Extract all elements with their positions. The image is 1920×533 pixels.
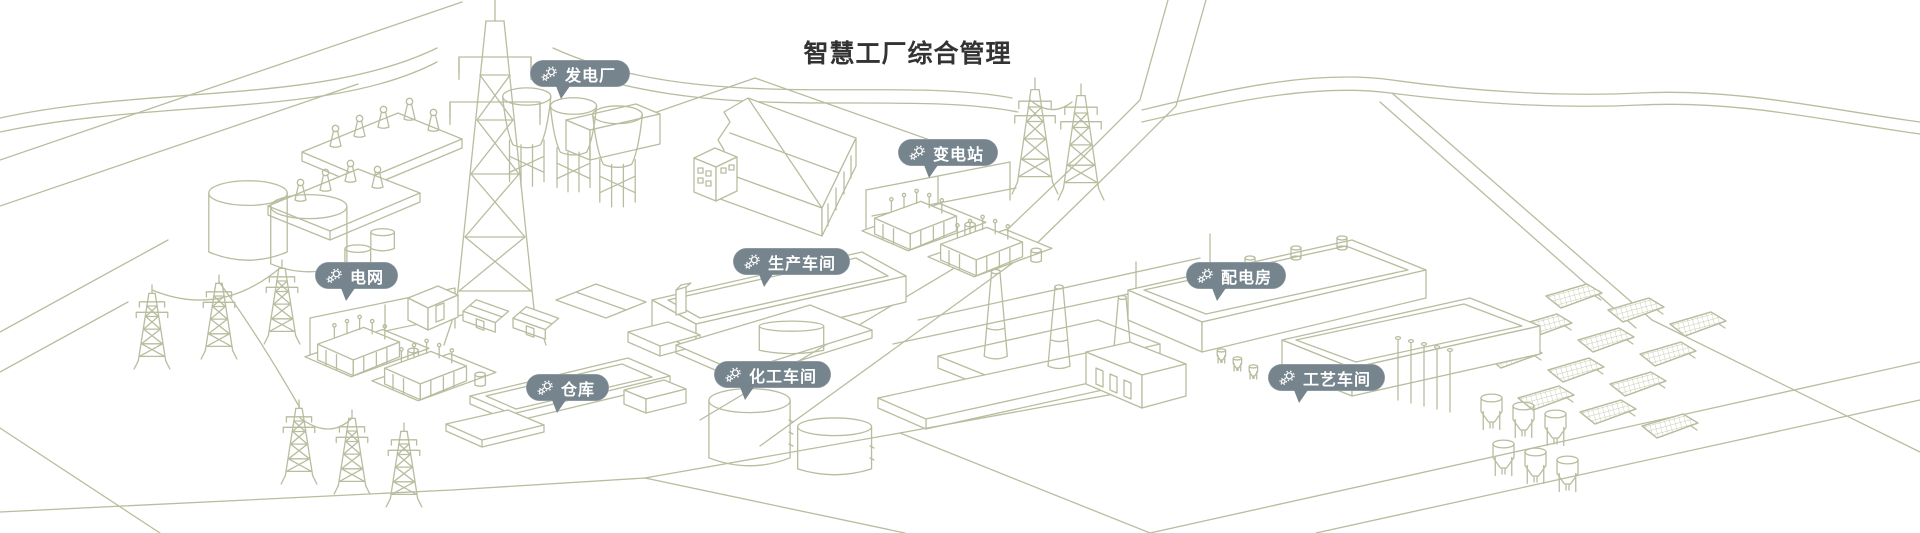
- marker-process-workshop[interactable]: 工艺车间: [1268, 364, 1385, 391]
- marker-chemical-workshop[interactable]: 化工车间: [714, 361, 831, 388]
- marker-warehouse[interactable]: 仓库: [526, 374, 609, 401]
- gears-icon: [724, 366, 742, 384]
- marker-label: 发电厂: [565, 62, 616, 86]
- gears-icon: [908, 144, 926, 162]
- marker-label: 电网: [350, 264, 384, 288]
- marker-label: 生产车间: [768, 250, 836, 274]
- marker-power-distribution-room[interactable]: 配电房: [1186, 262, 1286, 289]
- substation-equipment: [862, 78, 1104, 277]
- marker-label: 配电房: [1221, 264, 1272, 288]
- power-grid-yard: [134, 260, 496, 507]
- marker-production-workshop[interactable]: 生产车间: [733, 248, 850, 275]
- solar-panel-array: [1486, 284, 1726, 438]
- marker-label: 工艺车间: [1303, 366, 1371, 390]
- gears-icon: [325, 267, 343, 285]
- marker-power-plant[interactable]: 发电厂: [530, 60, 630, 87]
- marker-label: 化工车间: [749, 363, 817, 387]
- factory-site-illustration: [0, 0, 1920, 533]
- marker-label: 变电站: [933, 141, 984, 165]
- page-title: 智慧工厂综合管理: [0, 34, 1815, 70]
- marker-substation[interactable]: 变电站: [898, 139, 998, 166]
- marker-label: 仓库: [561, 376, 595, 400]
- gears-icon: [1196, 267, 1214, 285]
- cooling-towers: [503, 88, 660, 207]
- gears-icon: [540, 65, 558, 83]
- gears-icon: [1278, 369, 1296, 387]
- sawtooth-factory-building: [694, 98, 856, 236]
- smart-factory-overview: { "page": { "title": "智慧工厂综合管理" }, "colo…: [0, 0, 1920, 533]
- marker-power-grid[interactable]: 电网: [315, 262, 398, 289]
- gears-icon: [743, 253, 761, 271]
- transformer-yard: [268, 98, 462, 240]
- warehouse-area: [446, 284, 686, 447]
- gears-icon: [536, 379, 554, 397]
